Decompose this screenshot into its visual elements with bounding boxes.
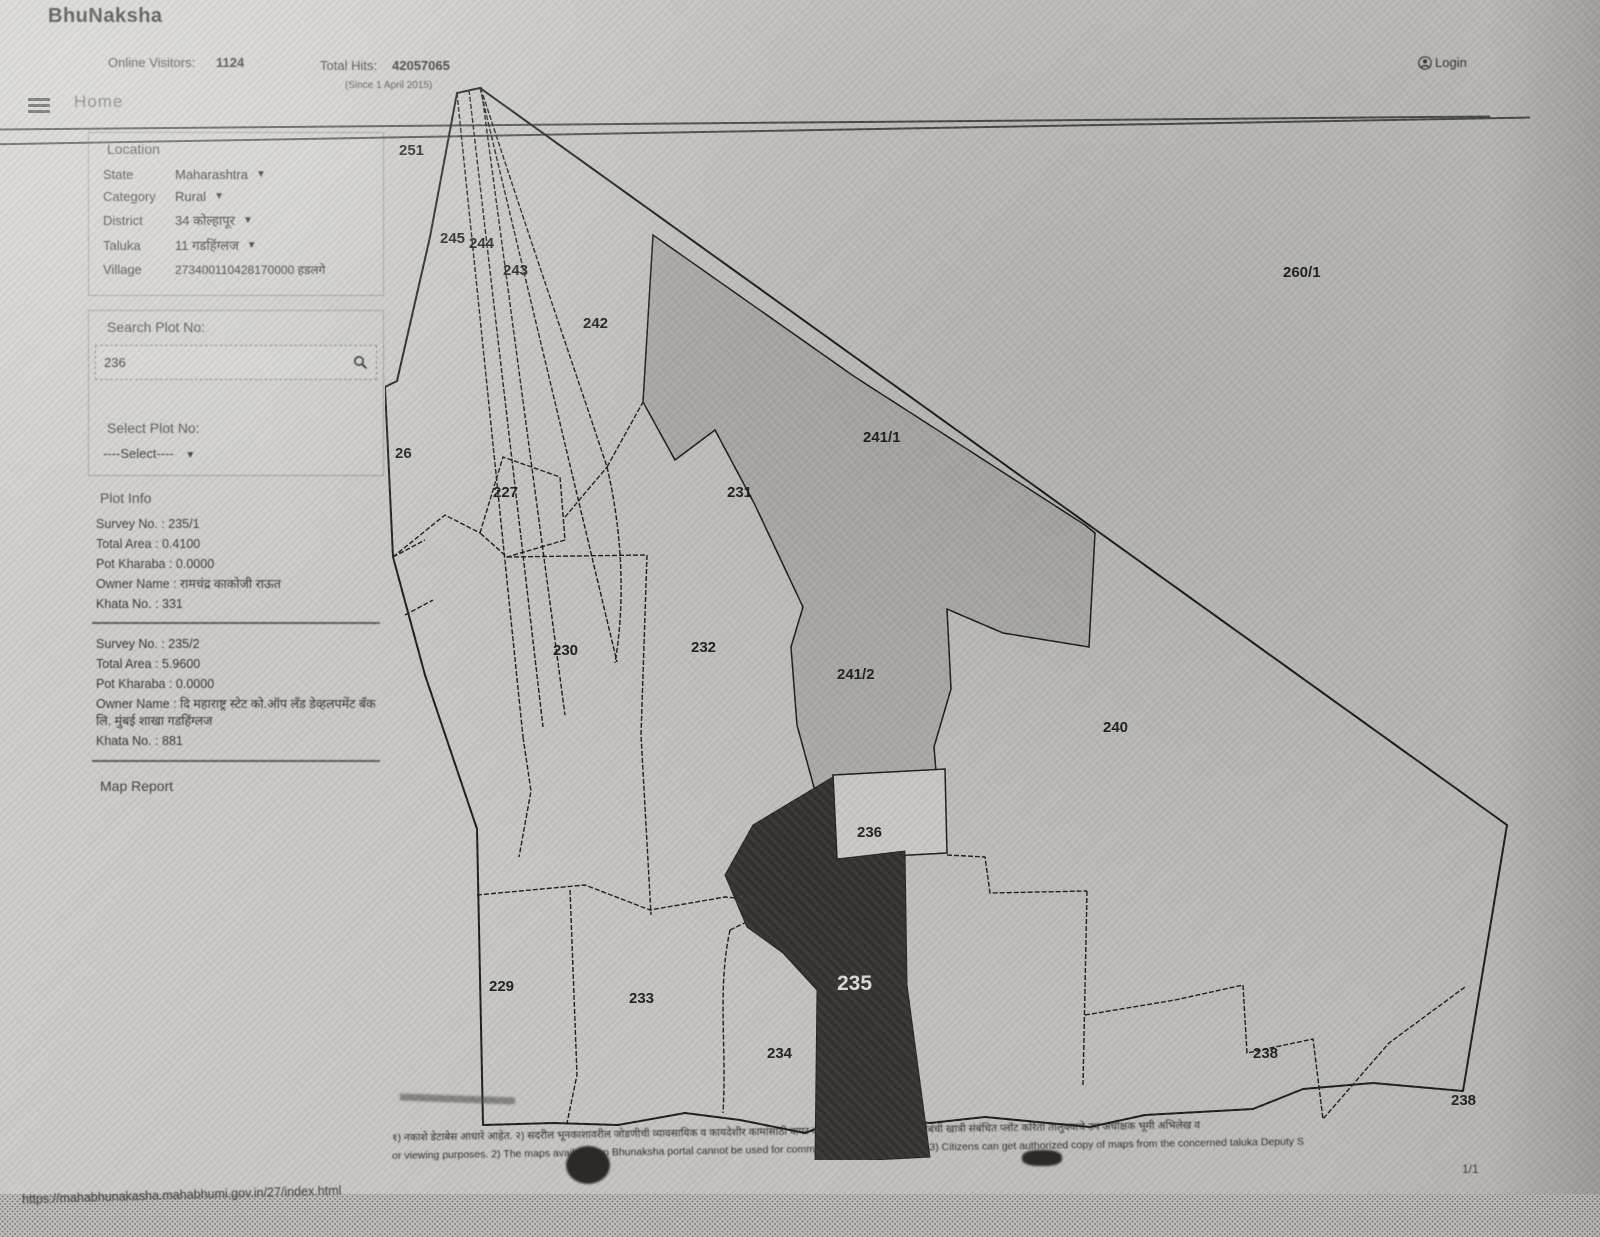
plot-boundary: [607, 402, 643, 467]
online-visitors-label: Online Visitors:: [108, 55, 195, 70]
plot-boundary: [565, 467, 607, 517]
plot-label-251: 251: [399, 142, 424, 159]
plot-boundary: [480, 88, 617, 662]
location-row-taluka[interactable]: Taluka 11 गडहिंग्लज ▼: [103, 236, 377, 254]
select-plot-dropdown[interactable]: ----Select---- ▼: [103, 446, 377, 461]
plot-label-242: 242: [583, 315, 608, 332]
total-area: Total Area : 0.4100: [96, 536, 384, 553]
plot-boundary: [483, 95, 607, 467]
plot-region-236[interactable]: [833, 769, 947, 859]
sidebar: Location State Maharashtra ▼ Category Ru…: [88, 132, 384, 794]
plot-label-26: 26: [395, 445, 412, 462]
plot-label-241/2: 241/2: [837, 666, 875, 683]
plot-info-title: Plot Info: [100, 490, 384, 506]
pot-kharaba: Pot Kharaba : 0.0000: [96, 676, 384, 693]
chevron-down-icon: ▼: [256, 169, 266, 180]
search-icon[interactable]: [353, 355, 368, 370]
plot-boundary: [607, 467, 621, 663]
khata-no: Khata No. : 331: [96, 596, 384, 613]
illegible-annotation: [400, 1097, 515, 1101]
location-row-category[interactable]: Category Rural ▼: [103, 189, 377, 204]
scan-dither-band: [0, 1194, 1600, 1237]
plot-label-231: 231: [727, 484, 752, 501]
plot-boundary: [469, 90, 543, 727]
search-plot-label: Search Plot No:: [107, 319, 377, 335]
search-section: Search Plot No: 236 Select Plot No: ----…: [88, 310, 384, 476]
plot-boundary: [519, 737, 531, 857]
plot-label-230: 230: [553, 642, 578, 659]
plot-label-260/1: 260/1: [1283, 264, 1321, 281]
plot-label-233: 233: [629, 990, 654, 1007]
select-plot-label: Select Plot No:: [107, 420, 377, 436]
search-input-value: 236: [104, 355, 126, 370]
page-indicator: 1/1: [1462, 1162, 1479, 1176]
total-hits-value: 42057065: [392, 58, 450, 73]
plot-label-229: 229: [489, 978, 514, 995]
app-title: BhuNaksha: [48, 5, 163, 28]
plot-label-232: 232: [691, 639, 716, 656]
plot-boundary: [457, 93, 523, 737]
chevron-down-icon: ▼: [243, 215, 253, 226]
chevron-down-icon: ▼: [185, 450, 195, 461]
location-section: Location State Maharashtra ▼ Category Ru…: [88, 132, 384, 296]
login-label: Login: [1435, 55, 1467, 70]
khata-no: Khata No. : 881: [96, 733, 384, 750]
location-row-district[interactable]: District 34 कोल्हापूर ▼: [103, 211, 377, 229]
search-input[interactable]: 236: [95, 345, 377, 380]
plot-label-238: 238: [1253, 1045, 1278, 1062]
plot-label-236: 236: [857, 824, 882, 841]
survey-no: Survey No. : 235/1: [96, 516, 384, 533]
plot-label-241/1: 241/1: [863, 429, 901, 446]
plot-boundary: [507, 555, 647, 557]
plot-label-243: 243: [503, 262, 528, 279]
plot-info-block-1: Survey No. : 235/1 Total Area : 0.4100 P…: [88, 516, 384, 612]
plot-label-235: 235: [837, 972, 872, 995]
bhunaksha-page: BhuNaksha Online Visitors: 1124 Total Hi…: [0, 0, 1600, 1237]
owner-name: Owner Name : रामचंद्र काकोजी राऊत: [96, 576, 384, 593]
plot-boundary: [481, 87, 565, 715]
login-button[interactable]: Login: [1418, 55, 1467, 70]
location-row-state[interactable]: State Maharashtra ▼: [103, 167, 377, 182]
plot-boundary-227: [480, 457, 565, 557]
ink-blob: [566, 1146, 610, 1184]
nav-home[interactable]: Home: [74, 92, 123, 112]
total-area: Total Area : 5.9600: [96, 656, 384, 673]
plot-label-245: 245: [440, 230, 465, 247]
location-title: Location: [107, 141, 377, 157]
plot-label-240: 240: [1103, 719, 1128, 736]
plot-boundary: [1083, 891, 1087, 1085]
menu-icon[interactable]: [28, 95, 50, 116]
plot-boundary: [723, 930, 730, 1113]
online-visitors-value: 1124: [216, 55, 244, 70]
ink-blob: [1022, 1150, 1062, 1166]
chevron-down-icon: ▼: [247, 240, 257, 251]
plot-label-238: 238: [1451, 1092, 1476, 1109]
plot-label-244: 244: [469, 235, 495, 252]
plot-label-227: 227: [493, 484, 518, 501]
divider: [92, 622, 380, 624]
divider: [92, 760, 380, 762]
plot-label-234: 234: [767, 1045, 793, 1062]
survey-no: Survey No. : 235/2: [96, 636, 384, 653]
user-icon: [1418, 56, 1432, 70]
owner-name: Owner Name : दि महाराष्ट्र स्टेट को.ऑप ल…: [96, 696, 384, 730]
map-report-link[interactable]: Map Report: [100, 778, 384, 794]
cadastral-map[interactable]: 251245244243242260/126227231241/12302322…: [385, 85, 1510, 1160]
chevron-down-icon: ▼: [214, 191, 224, 202]
plot-region-241[interactable]: [643, 235, 1095, 847]
plot-boundary: [567, 890, 577, 1123]
plot-info-block-2: Survey No. : 235/2 Total Area : 5.9600 P…: [88, 636, 384, 749]
pot-kharaba: Pot Kharaba : 0.0000: [96, 556, 384, 573]
plot-info-section: Plot Info Survey No. : 235/1 Total Area …: [88, 490, 384, 794]
location-row-village[interactable]: Village 273400110428170000 हडलगे: [103, 261, 377, 278]
total-hits-label: Total Hits:: [320, 58, 377, 73]
plot-boundary: [947, 855, 1087, 893]
plot-boundary: [641, 555, 651, 915]
